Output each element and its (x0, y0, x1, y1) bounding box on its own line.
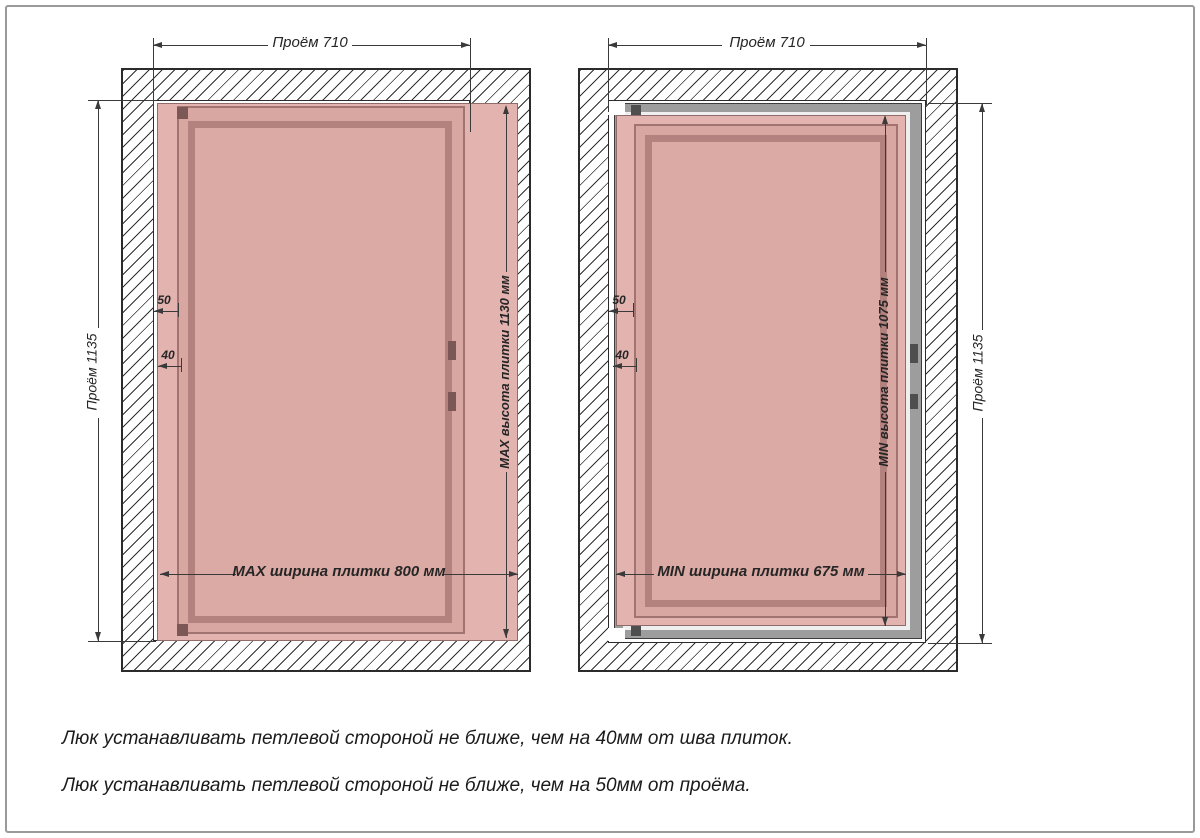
extension-line (608, 38, 609, 112)
dimension-line (608, 45, 722, 46)
dimension-line (885, 117, 886, 272)
dimension-line (982, 103, 983, 330)
hinge-top-icon (631, 105, 641, 115)
dim-opening-width-label: Проём 710 (710, 35, 824, 52)
tick-mark (633, 303, 634, 317)
dim-tile-width-label: MIN ширина плитки 675 мм (654, 564, 868, 581)
tick-mark (636, 358, 637, 372)
dimension-line (982, 418, 983, 643)
arrow-right-icon (897, 571, 906, 577)
dimension-line (810, 45, 926, 46)
note-hinge-opening-offset: Люк устанавливать петлевой стороной не б… (62, 775, 751, 797)
hinge-bottom-icon (631, 626, 641, 636)
dim-opening-height-label: Проём 1135 (970, 334, 985, 411)
latch-lower-icon (910, 394, 918, 409)
arrow-down-icon (979, 634, 985, 643)
dim-tile-height-label: MIN высота плитки 1075 мм (877, 277, 891, 466)
latch-upper-icon (910, 344, 918, 363)
dim-offset-seam-label: 40 (609, 349, 635, 362)
blueprint-canvas: Проём 710 Проём 1135 50 40 MAX высота пл… (0, 0, 1200, 838)
arrow-right-icon (917, 42, 926, 48)
arrow-down-icon (882, 617, 888, 626)
extension-line (928, 643, 992, 644)
arrow-left-icon (608, 42, 617, 48)
arrow-left-icon (616, 571, 625, 577)
arrow-left-icon (613, 363, 622, 369)
hinge-notch-top (608, 102, 625, 115)
dimension-line (885, 472, 886, 626)
arrow-up-icon (882, 115, 888, 124)
hatch-door (645, 135, 887, 607)
extension-line (926, 38, 927, 105)
drawing-min-tile: Проём 710 Проём 1135 50 40 MIN высота пл… (0, 0, 1200, 838)
hinge-notch-bottom (608, 628, 625, 641)
note-hinge-seam-offset: Люк устанавливать петлевой стороной не б… (62, 728, 793, 750)
dim-offset-opening-label: 50 (606, 294, 632, 307)
arrow-up-icon (979, 103, 985, 112)
arrow-left-icon (609, 308, 618, 314)
